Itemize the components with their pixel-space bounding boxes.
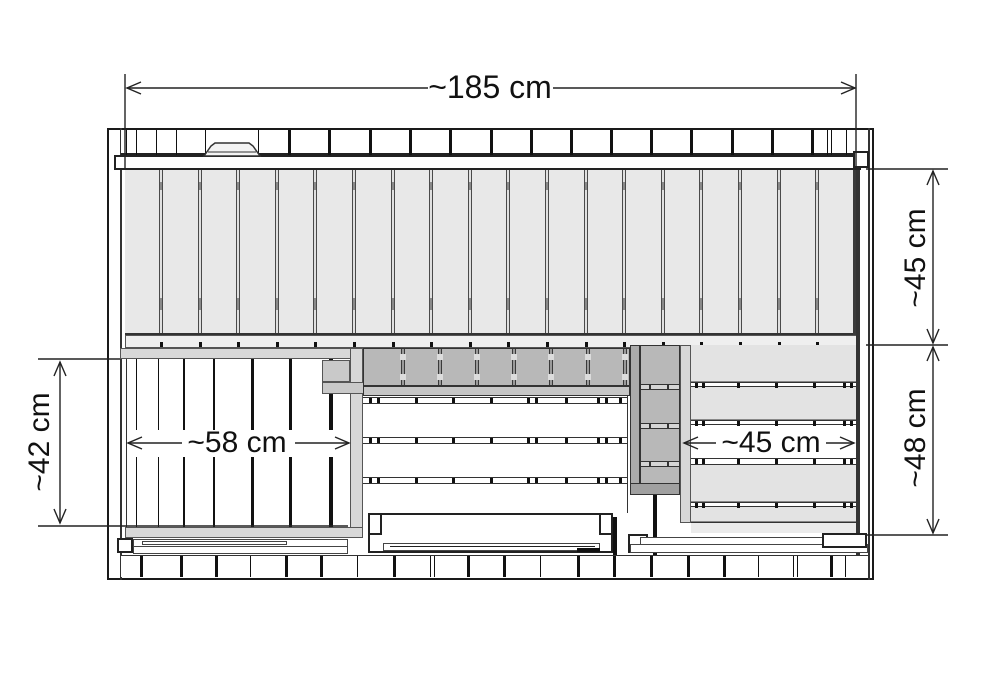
dimension-lines	[0, 0, 1000, 700]
dim-left-bench-depth: ~42 cm	[23, 367, 57, 517]
sauna-plan-diagram: ~185 cm ~45 cm ~48 cm ~42 cm ~58 cm ~45 …	[0, 0, 1000, 700]
dim-overall-width: ~185 cm	[400, 70, 580, 104]
dim-front-area-depth: ~48 cm	[899, 363, 933, 513]
dim-right-bench-width: ~45 cm	[696, 426, 846, 460]
dim-back-bench-depth: ~45 cm	[899, 183, 933, 333]
dim-left-bench-width: ~58 cm	[162, 426, 312, 460]
